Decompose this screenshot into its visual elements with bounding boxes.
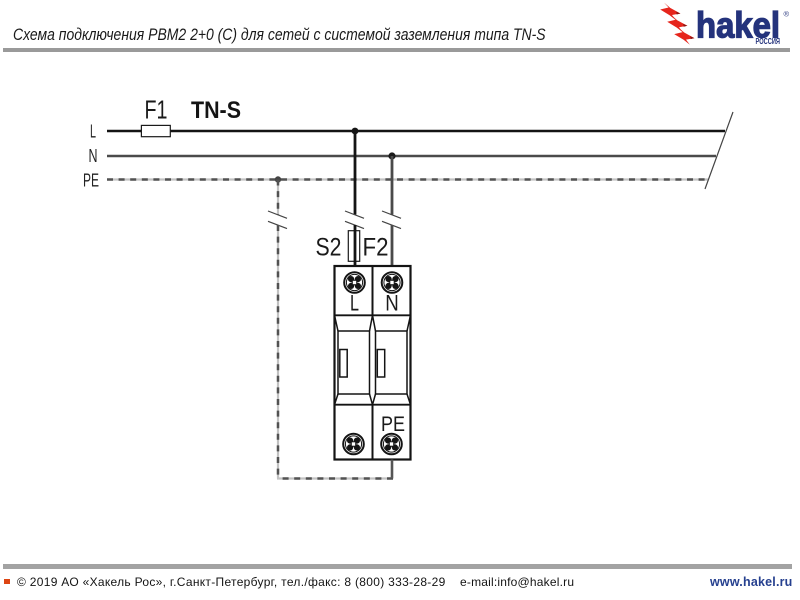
svg-text:TN-S: TN-S (191, 97, 241, 124)
svg-text:N: N (89, 146, 98, 166)
svg-text:PE: PE (381, 413, 405, 436)
svg-text:N: N (385, 291, 399, 316)
svg-text:F1: F1 (145, 94, 168, 124)
svg-text:L: L (350, 291, 359, 316)
svg-text:L: L (90, 122, 96, 142)
svg-text:PE: PE (83, 170, 99, 190)
svg-text:F2: F2 (363, 233, 389, 261)
svg-text:S2: S2 (316, 233, 342, 261)
